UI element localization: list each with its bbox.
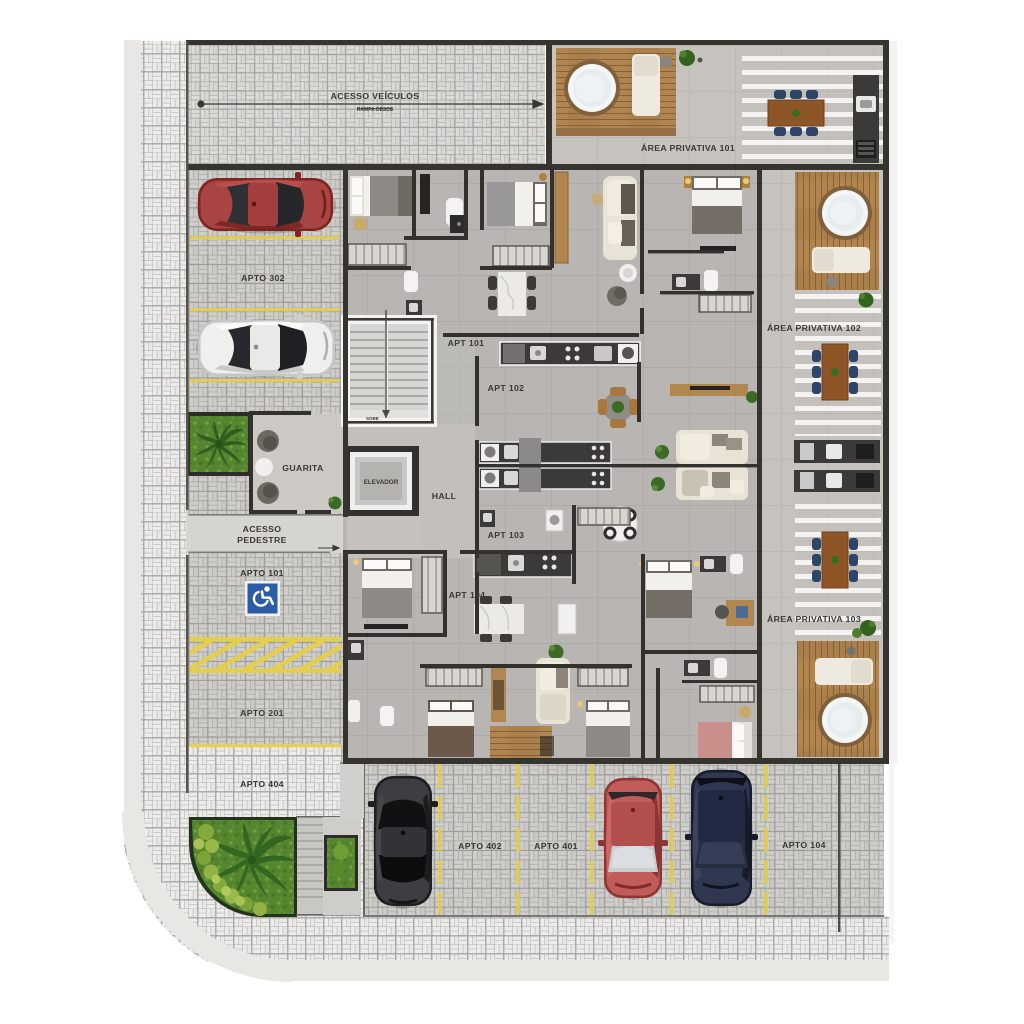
svg-text:ACESSO: ACESSO [243, 524, 282, 534]
svg-text:APTO 101: APTO 101 [240, 568, 284, 578]
svg-text:ÁREA PRIVATIVA 102: ÁREA PRIVATIVA 102 [767, 323, 861, 333]
svg-text:APT 104: APT 104 [449, 590, 486, 600]
svg-text:APTO 201: APTO 201 [240, 708, 284, 718]
svg-text:GUARITA: GUARITA [282, 463, 324, 473]
svg-text:RAMPA DESCE: RAMPA DESCE [357, 107, 394, 113]
svg-text:ÁREA PRIVATIVA 101: ÁREA PRIVATIVA 101 [641, 143, 735, 153]
svg-text:ELEVADOR: ELEVADOR [364, 479, 399, 486]
svg-text:APTO 404: APTO 404 [240, 779, 284, 789]
svg-text:APT 102: APT 102 [488, 383, 525, 393]
svg-text:HALL: HALL [432, 491, 457, 501]
svg-text:APTO 104: APTO 104 [782, 840, 826, 850]
svg-text:APTO 402: APTO 402 [458, 841, 502, 851]
svg-text:SOBE: SOBE [366, 416, 379, 421]
svg-text:APTO 302: APTO 302 [241, 273, 285, 283]
svg-text:PEDESTRE: PEDESTRE [237, 535, 287, 545]
svg-text:ACESSO VEÍCULOS: ACESSO VEÍCULOS [331, 91, 420, 101]
svg-text:APTO 401: APTO 401 [534, 841, 578, 851]
svg-text:APT 103: APT 103 [488, 530, 525, 540]
svg-text:APT 101: APT 101 [448, 338, 485, 348]
svg-text:ÁREA PRIVATIVA 103: ÁREA PRIVATIVA 103 [767, 614, 861, 624]
